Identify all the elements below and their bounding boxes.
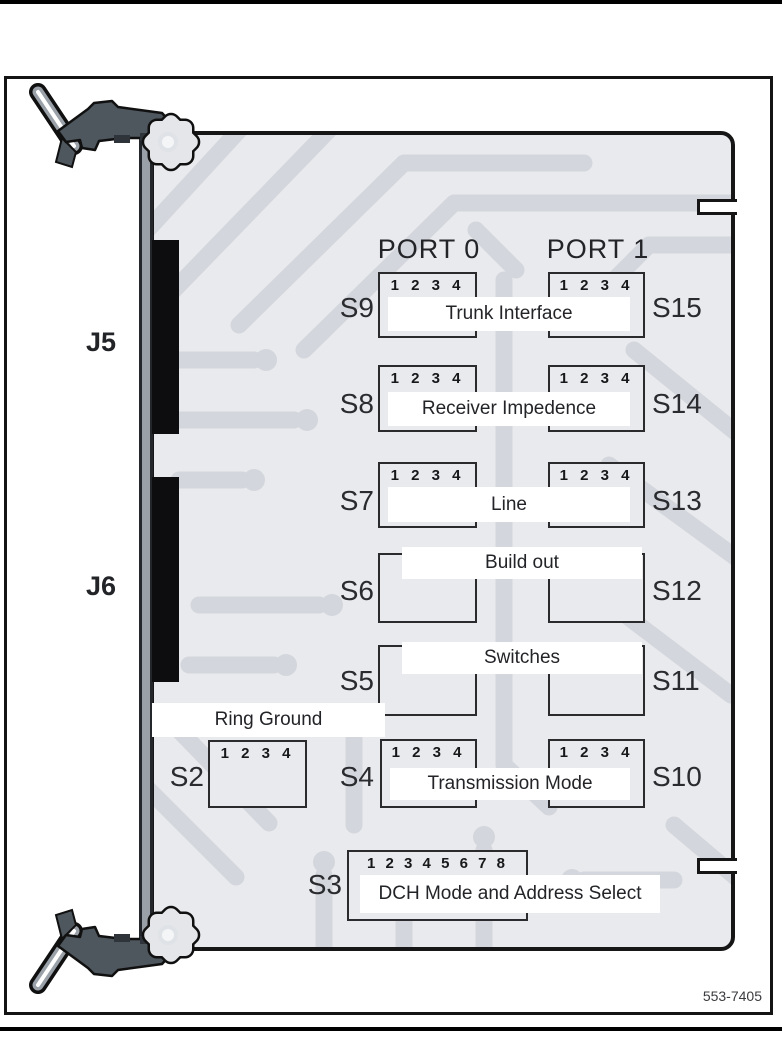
label-s9: S9: [326, 292, 374, 324]
connector-j6: [152, 477, 179, 682]
label-s8: S8: [326, 388, 374, 420]
switch-s2: 1 2 3 4: [208, 740, 307, 808]
band-receiver-impedence: Receiver Impedence: [388, 392, 630, 426]
board-notch-bottom: [697, 858, 737, 874]
band-ring-ground: Ring Ground: [152, 703, 385, 737]
label-s15: S15: [652, 292, 726, 324]
label-s11: S11: [652, 665, 726, 697]
page-bottom-rule: [0, 1027, 782, 1031]
board-notch-top: [697, 199, 737, 215]
label-s6: S6: [326, 575, 374, 607]
label-s10: S10: [652, 761, 726, 793]
switch-s2-positions: 1 2 3 4: [210, 745, 305, 762]
switch-s13-positions: 1 2 3 4: [550, 467, 643, 484]
switch-s3-positions: 1 2 3 4 5 6 7 8: [349, 855, 526, 872]
label-s7: S7: [326, 485, 374, 517]
switch-s10-positions: 1 2 3 4: [550, 744, 643, 761]
port0-label: PORT 0: [368, 234, 490, 265]
label-s14: S14: [652, 388, 726, 420]
label-s13: S13: [652, 485, 726, 517]
switch-s8-positions: 1 2 3 4: [380, 370, 475, 387]
band-switches: Switches: [402, 642, 642, 674]
band-trunk-interface: Trunk Interface: [388, 297, 630, 331]
switch-s4-positions: 1 2 3 4: [382, 744, 475, 761]
band-transmission-mode: Transmission Mode: [390, 768, 630, 800]
card-ejector-bottom-icon: [22, 899, 207, 999]
connector-j5: [152, 240, 179, 434]
port1-label: PORT 1: [537, 234, 659, 265]
switch-s9-positions: 1 2 3 4: [380, 277, 475, 294]
label-s3: S3: [294, 869, 342, 901]
switch-s7-positions: 1 2 3 4: [380, 467, 475, 484]
band-line: Line: [388, 487, 630, 522]
band-build-out: Build out: [402, 547, 642, 579]
switch-s15-positions: 1 2 3 4: [550, 277, 643, 294]
page-top-rule: [0, 0, 782, 4]
label-s5: S5: [326, 665, 374, 697]
label-s4: S4: [326, 761, 374, 793]
figure-page: J5 J6: [0, 0, 782, 1042]
connector-j6-label: J6: [74, 571, 128, 602]
band-dch-mode: DCH Mode and Address Select: [360, 875, 660, 913]
faceplate-rail: [139, 127, 153, 955]
label-s12: S12: [652, 575, 726, 607]
card-ejector-top-icon: [22, 78, 207, 178]
switch-s14-positions: 1 2 3 4: [550, 370, 643, 387]
figure-number: 553-7405: [600, 988, 762, 1004]
connector-j5-label: J5: [74, 327, 128, 358]
label-s2: S2: [156, 761, 204, 793]
